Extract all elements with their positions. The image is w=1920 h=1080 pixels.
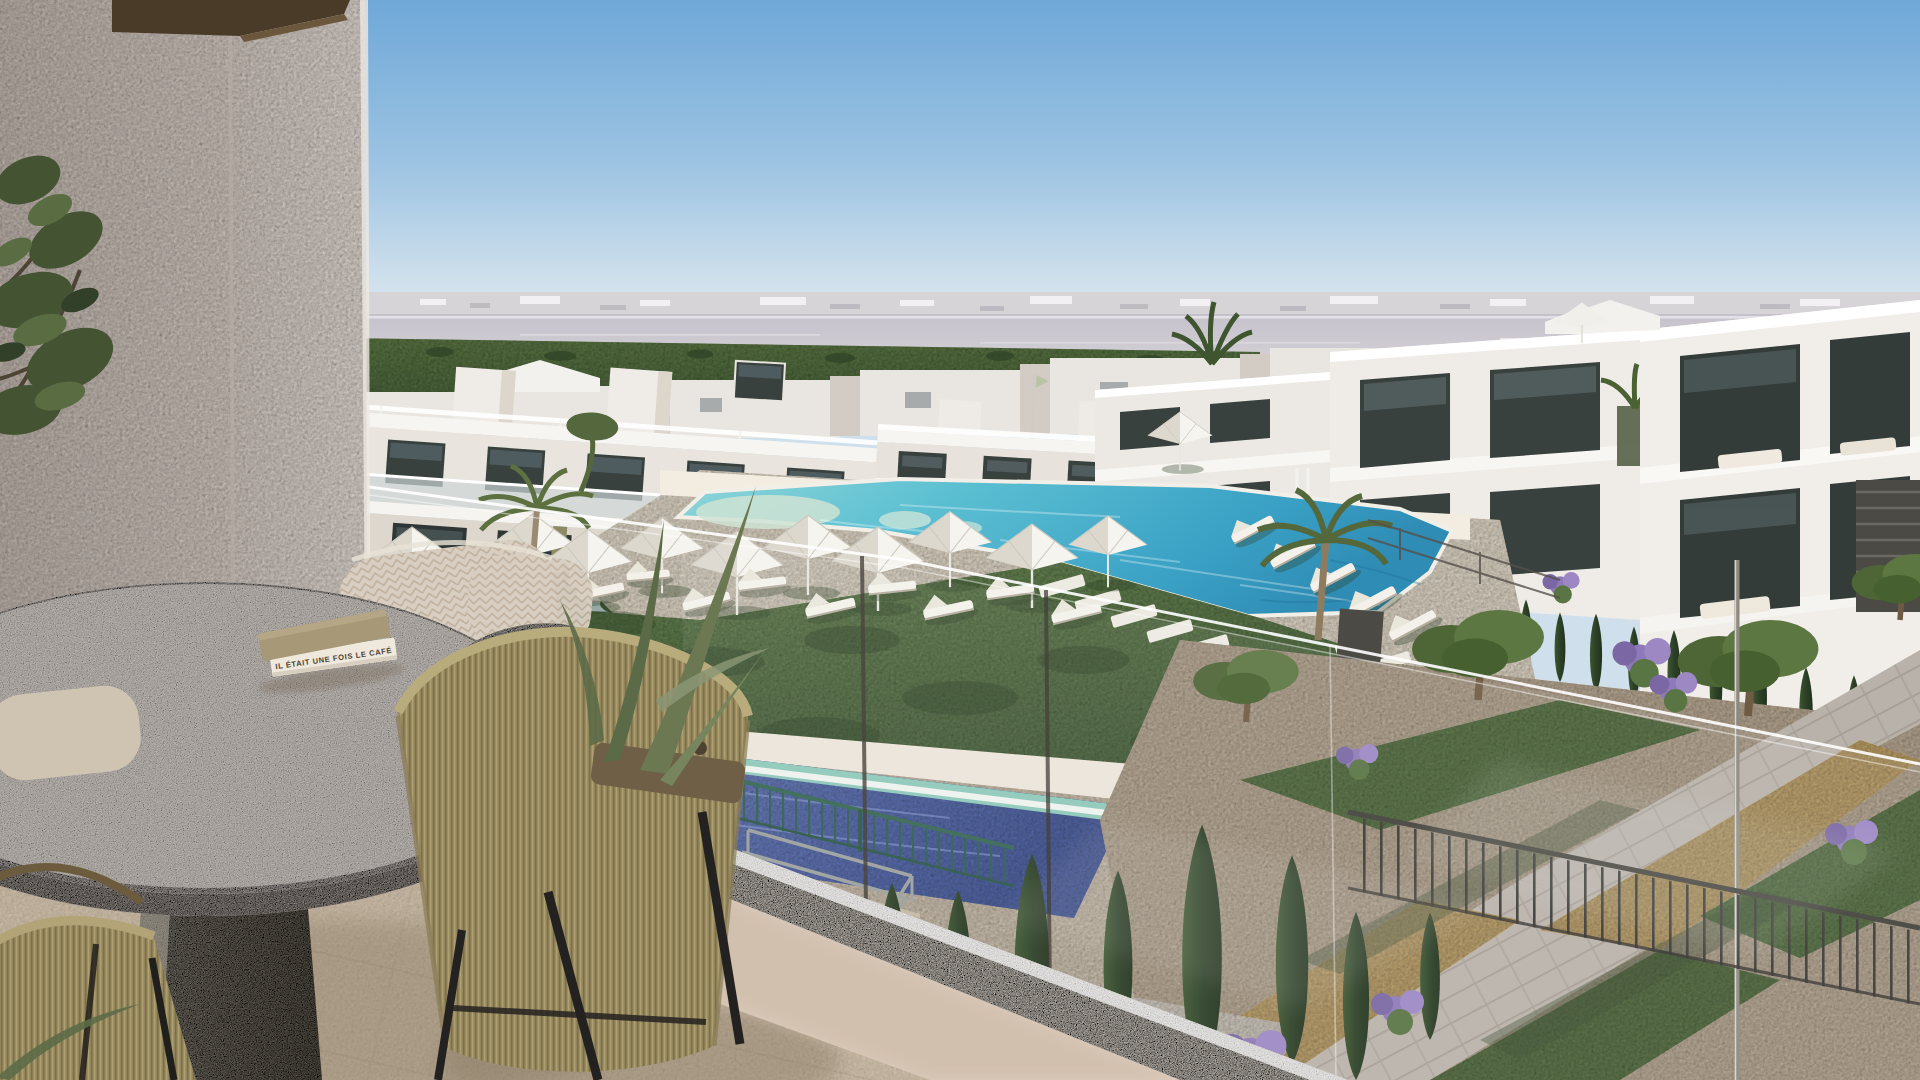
scene-canvas: IL ÉTAIT UNE FOIS LE CAFÉ <box>0 0 1920 1080</box>
balcony-view-render: IL ÉTAIT UNE FOIS LE CAFÉ <box>0 0 1920 1080</box>
armchair-right <box>398 623 748 1080</box>
window <box>734 361 785 401</box>
